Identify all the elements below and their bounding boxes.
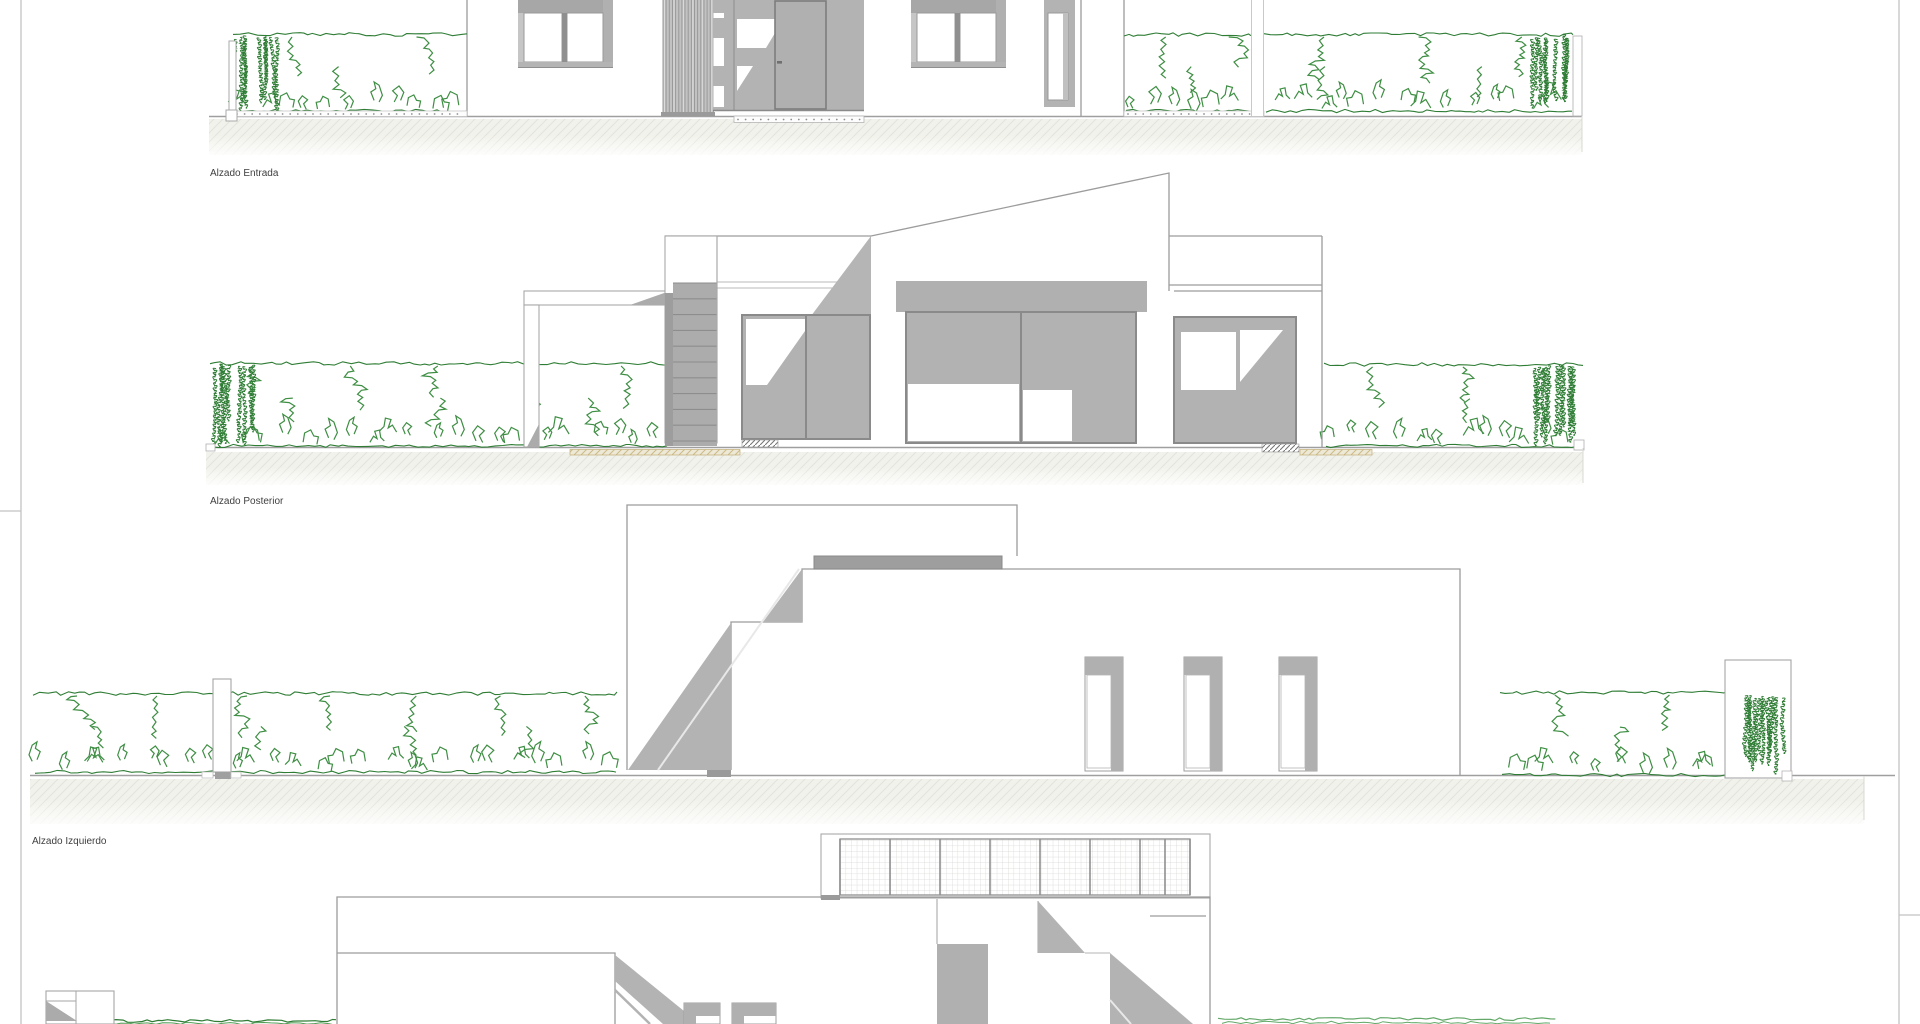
svg-text:Alzado Entrada: Alzado Entrada xyxy=(210,168,279,179)
svg-text:Alzado Izquierdo: Alzado Izquierdo xyxy=(32,836,107,847)
svg-text:Alzado Posterior: Alzado Posterior xyxy=(210,496,284,507)
